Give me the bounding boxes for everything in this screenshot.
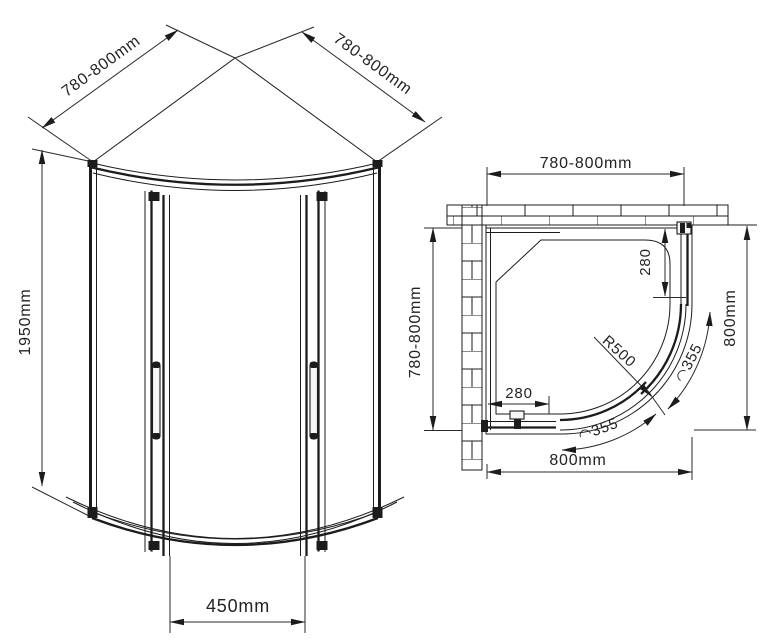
dim-label: 450mm	[206, 596, 270, 616]
dim-panel-inset-bottom: 280	[488, 385, 549, 414]
dim-corner-radius: R500	[594, 332, 651, 396]
dim-label: ◠355	[576, 415, 621, 445]
door-overlap-tick	[648, 391, 665, 415]
dim-label: 780-800mm	[407, 286, 424, 379]
dim-label: 800mm	[722, 289, 739, 346]
left-wall	[462, 205, 482, 470]
right-fixed-panel	[677, 222, 691, 306]
dim-front-height: 1950mm	[17, 150, 42, 486]
dim-front-width-left: 780-800mm	[42, 30, 178, 128]
right-door-top-roller	[317, 192, 328, 201]
top-plan-view: 780-800mm 780-800mm 800mm 800mm 280 280	[407, 155, 757, 480]
dim-plan-depth-left: 780-800mm	[407, 228, 462, 431]
shower-enclosure-technical-drawing: 780-800mm 780-800mm 1950mm 450mm	[0, 0, 770, 644]
tray-outer-outline	[486, 225, 692, 434]
bottom-curved-rail-and-tray	[66, 497, 404, 545]
dim-panel-inset-right: 280	[637, 229, 686, 298]
dim-label: 280	[637, 248, 654, 275]
front-isometric-view: 780-800mm 780-800mm 1950mm 450mm	[17, 25, 442, 633]
left-door-bottom-roller	[149, 541, 160, 550]
dim-door-opening: 450mm	[170, 596, 305, 622]
dim-plan-width-bottom: 800mm	[487, 437, 692, 480]
dim-label: R500	[599, 332, 639, 371]
door-roller-bracket	[510, 411, 524, 419]
dim-front-width-right: 780-800mm	[302, 30, 425, 122]
left-door-top-roller	[149, 192, 160, 201]
back-top-edges	[93, 58, 377, 162]
dim-plan-width-top: 780-800mm	[487, 155, 684, 206]
left-door-handle	[153, 362, 161, 439]
left-frame-post	[88, 160, 98, 518]
dim-door-arc-upper: ◠355	[668, 312, 710, 409]
dim-label: ◠355	[672, 341, 706, 386]
dim-plan-depth-right: 800mm	[694, 226, 756, 430]
dim-label: 1950mm	[17, 288, 34, 355]
dim-label: 780-800mm	[59, 32, 144, 100]
right-door-handle	[310, 362, 318, 439]
sliding-door-panels	[145, 191, 328, 557]
right-frame-post	[373, 160, 383, 518]
dim-label: 780-800mm	[330, 30, 415, 98]
dim-label: 800mm	[549, 452, 606, 469]
right-door-bottom-roller	[317, 541, 328, 550]
dim-label: 780-800mm	[540, 155, 633, 172]
drawing-sheet: 780-800mm 780-800mm 1950mm 450mm	[0, 0, 770, 644]
magnet-profile	[481, 420, 488, 432]
dim-label: 280	[505, 385, 532, 402]
top-curved-rail	[92, 163, 378, 191]
